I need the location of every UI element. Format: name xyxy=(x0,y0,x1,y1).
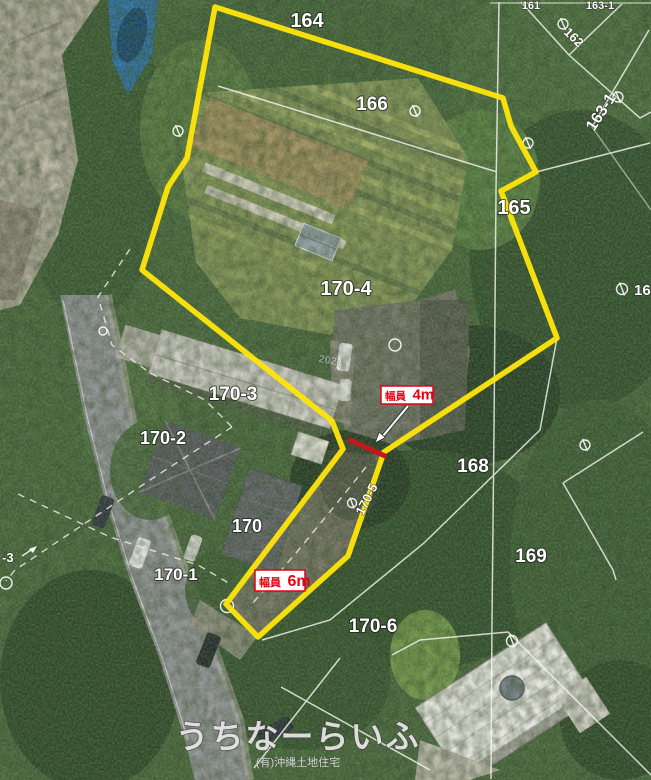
parcel-label-169: 169 xyxy=(515,546,547,567)
watermark-brand: うちなーらいふ xyxy=(176,718,421,755)
parcel-label-edge-left: -3 xyxy=(2,550,14,565)
road-width-6m-label: 幅員 6m xyxy=(255,570,311,591)
parcel-label-edge-right: 16 xyxy=(634,282,651,299)
width-4m-prefix: 幅員 xyxy=(385,390,406,403)
watermark-company: (有)沖縄土地住宅 xyxy=(256,755,340,769)
road-width-4m-label: 幅員 4m xyxy=(381,386,434,404)
parcel-label-170-3: 170-3 xyxy=(209,384,258,405)
parcel-label-166: 166 xyxy=(356,94,388,115)
aerial-map: 2021 xyxy=(0,0,651,780)
parcel-label-170-4: 170-4 xyxy=(320,278,372,300)
parcel-label-170: 170 xyxy=(232,516,262,536)
parcel-label-165: 165 xyxy=(497,197,530,219)
parcel-label-168: 168 xyxy=(457,456,489,477)
terrain xyxy=(0,0,651,780)
width-4m-value: 4m xyxy=(412,387,434,404)
parcel-label-170-6: 170-6 xyxy=(349,616,398,637)
parcel-label-170-2: 170-2 xyxy=(140,428,186,448)
parcel-label-170-1: 170-1 xyxy=(154,565,197,584)
width-6m-prefix: 幅員 xyxy=(259,575,281,589)
aerial-photo: 2021 xyxy=(0,0,651,780)
parcel-label-163-1-top: 163-1 xyxy=(586,0,614,12)
width-6m-value: 6m xyxy=(287,573,310,590)
parcel-label-164: 164 xyxy=(290,10,324,32)
parcel-label-161: 161 xyxy=(522,0,540,12)
